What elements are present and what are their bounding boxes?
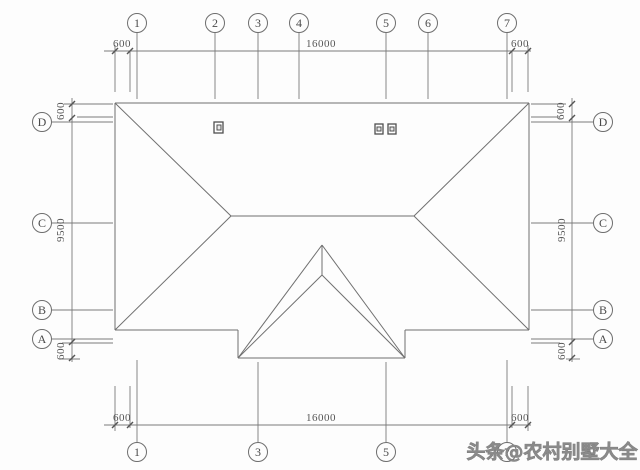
dim-text-bottom-right: 600 xyxy=(511,412,529,424)
roof-plan-drawing: 600 16000 600 600 16000 600 600 9500 600… xyxy=(0,0,640,470)
ridge-and-hip-lines xyxy=(115,103,529,330)
dimension-texts: 600 16000 600 600 16000 600 600 9500 600… xyxy=(55,38,568,424)
grid-bubble-label: C xyxy=(599,216,607,230)
roof-plan-canvas: 600 16000 600 600 16000 600 600 9500 600… xyxy=(0,0,640,470)
porch-gable-roof xyxy=(238,245,405,358)
grid-bubble-label: 5 xyxy=(383,16,389,30)
dim-text-bottom-left: 600 xyxy=(113,412,131,424)
grid-bubble-label: D xyxy=(599,115,608,129)
grid-bubble-label: 5 xyxy=(383,445,389,459)
porch-verge-outer-left xyxy=(238,245,322,358)
vent-icon-inner xyxy=(217,125,221,130)
dim-text-left-top: 600 xyxy=(55,102,67,120)
grid-bubbles-top: 1 2 3 4 5 6 7 xyxy=(128,14,517,33)
dim-text-left-middle: 9500 xyxy=(55,218,67,242)
grid-bubble-label: 6 xyxy=(425,16,431,30)
dim-text-top-right: 600 xyxy=(511,38,529,50)
hip-line-bottom-right xyxy=(414,216,529,330)
grid-bubble-label: D xyxy=(38,115,47,129)
grid-bubble-label: 2 xyxy=(212,16,218,30)
grid-bubble-label: B xyxy=(38,303,46,317)
grid-bubbles-bottom: 1 3 5 7 xyxy=(128,443,517,462)
porch-verge-inner-right xyxy=(322,275,405,358)
grid-bubble-label: 4 xyxy=(296,16,302,30)
hip-line-bottom-left xyxy=(115,216,231,330)
dim-text-right-middle: 9500 xyxy=(556,218,568,242)
porch-verge-outer-right xyxy=(322,245,405,358)
grid-bubble-label: 1 xyxy=(134,445,140,459)
grid-bubbles-left: D C B A xyxy=(33,113,52,349)
dim-text-bottom-middle: 16000 xyxy=(306,412,336,424)
grid-bubble-label: A xyxy=(38,332,47,346)
dim-text-right-bottom: 600 xyxy=(556,342,568,360)
roof-vent-symbols xyxy=(214,122,396,134)
hip-line-top-right xyxy=(414,103,529,216)
dim-text-top-middle: 16000 xyxy=(306,38,336,50)
grid-bubble-label: A xyxy=(599,332,608,346)
grid-bubble-label: B xyxy=(599,303,607,317)
watermark-text: 头条@农村别墅大全 xyxy=(466,440,638,463)
grid-bubble-label: 1 xyxy=(134,16,140,30)
vent-icon-inner xyxy=(377,127,381,131)
hip-line-top-left xyxy=(115,103,231,216)
grid-bubble-label: 3 xyxy=(255,16,261,30)
dim-text-top-left: 600 xyxy=(113,38,131,50)
dim-text-left-bottom: 600 xyxy=(55,342,67,360)
grid-lines xyxy=(52,33,593,442)
porch-verge-inner-left xyxy=(238,275,322,358)
grid-bubble-label: 7 xyxy=(504,16,510,30)
vent-icon-inner xyxy=(390,127,394,131)
grid-bubble-label: 3 xyxy=(255,445,261,459)
dim-text-right-top: 600 xyxy=(555,102,567,120)
grid-bubbles-right: D C B A xyxy=(594,113,613,349)
grid-bubble-label: C xyxy=(38,216,46,230)
